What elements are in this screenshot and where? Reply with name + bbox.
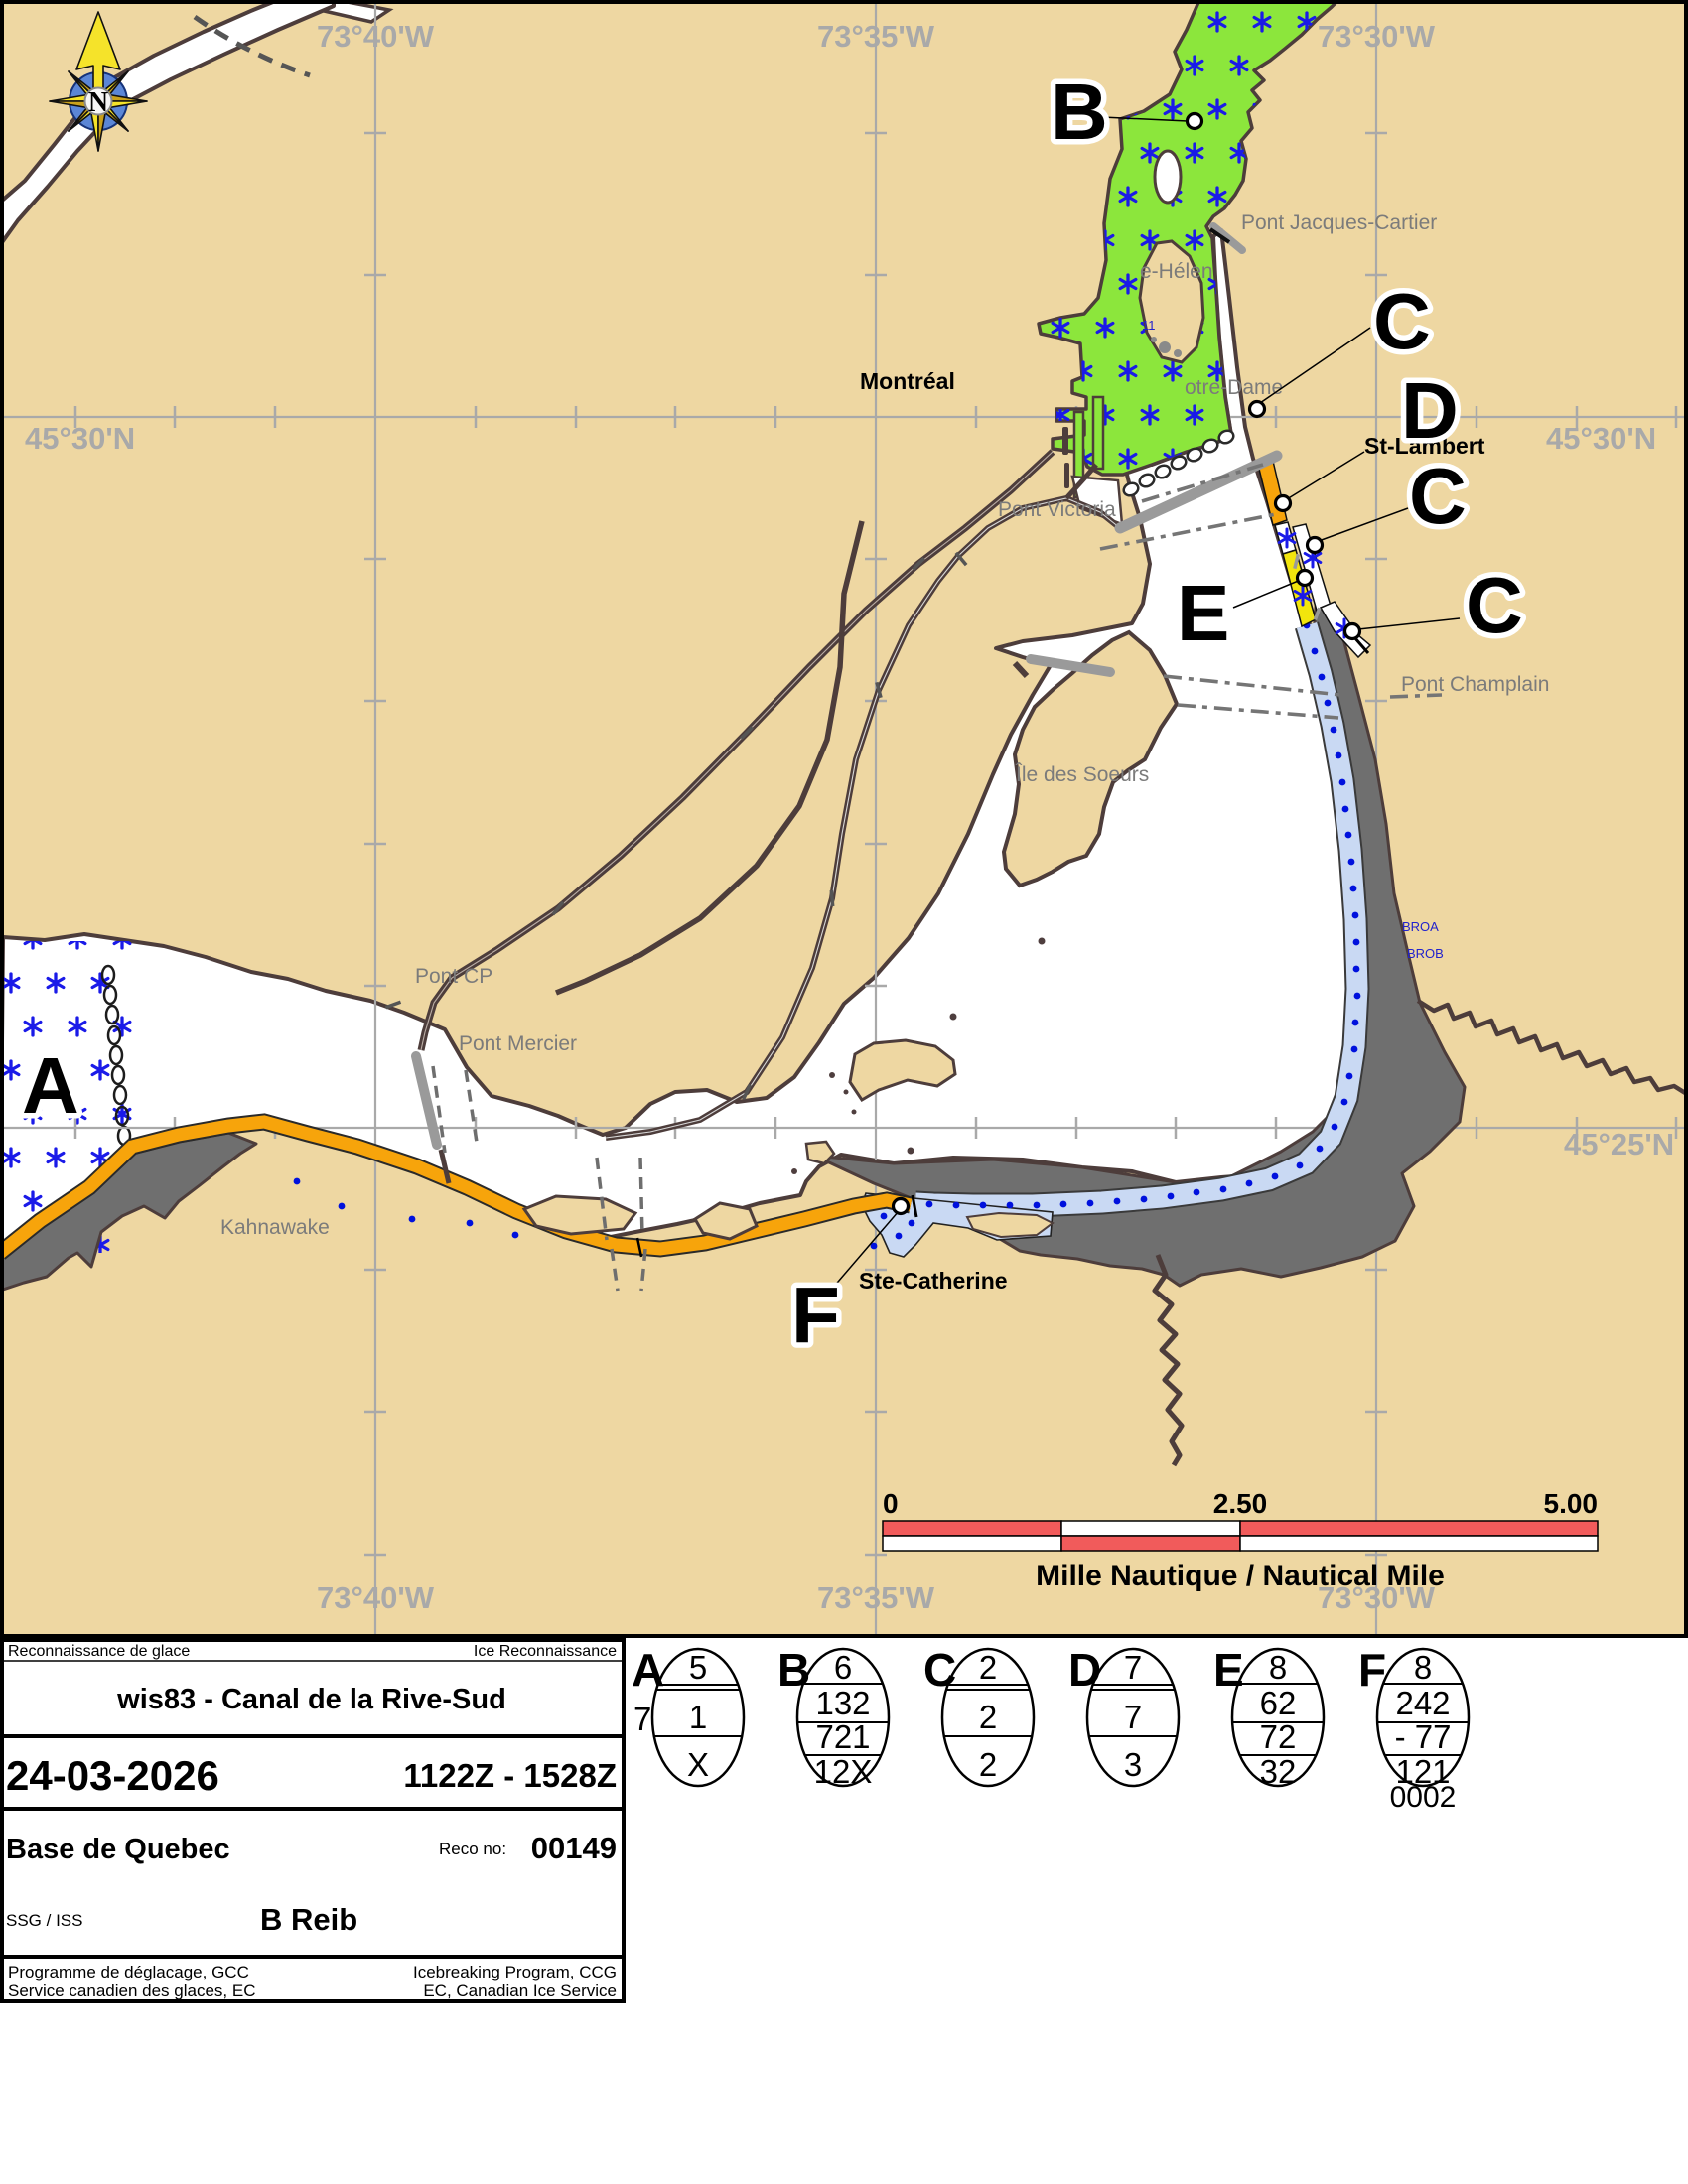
svg-text:73°40'W: 73°40'W — [317, 1580, 435, 1615]
svg-text:1: 1 — [689, 1699, 707, 1735]
svg-text:B Reib: B Reib — [260, 1902, 357, 1937]
svg-text:F: F — [791, 1271, 840, 1359]
svg-text:C: C — [1409, 452, 1467, 540]
svg-text:Montréal: Montréal — [860, 368, 955, 394]
svg-text:E: E — [1213, 1644, 1244, 1696]
svg-text:e-Hélen: e-Hélen — [1140, 260, 1213, 283]
svg-text:73°30'W: 73°30'W — [1318, 19, 1436, 54]
svg-text:E: E — [1177, 569, 1229, 657]
svg-text:Kahnawake: Kahnawake — [220, 1216, 330, 1239]
svg-text:- 77: - 77 — [1395, 1718, 1452, 1755]
svg-text:Programme de déglacage, GCC: Programme de déglacage, GCC — [8, 1963, 249, 1981]
svg-text:Pont Victoria: Pont Victoria — [998, 498, 1116, 521]
svg-text:Service canadien des glaces, E: Service canadien des glaces, EC — [8, 1981, 255, 2000]
svg-text:Ste-Catherine: Ste-Catherine — [859, 1268, 1008, 1294]
svg-text:6: 6 — [834, 1649, 852, 1686]
svg-text:00149: 00149 — [531, 1831, 617, 1865]
svg-text:Mille Nautique / Nautical Mile: Mille Nautique / Nautical Mile — [1036, 1560, 1445, 1592]
svg-text:721: 721 — [815, 1718, 870, 1755]
svg-text:Base de Quebec: Base de Quebec — [6, 1834, 230, 1865]
svg-text:Île des Soeurs: Île des Soeurs — [1015, 763, 1149, 786]
svg-text:0: 0 — [883, 1488, 899, 1519]
svg-text:5.00: 5.00 — [1544, 1488, 1599, 1519]
svg-text:242: 242 — [1395, 1685, 1450, 1721]
svg-text:7: 7 — [1124, 1699, 1142, 1735]
svg-text:C: C — [1373, 277, 1431, 365]
svg-text:Pont Mercier: Pont Mercier — [459, 1032, 577, 1055]
svg-text:73°35'W: 73°35'W — [817, 1580, 935, 1615]
svg-text:24-03-2026: 24-03-2026 — [6, 1752, 219, 1799]
svg-text:BROA: BROA — [1402, 919, 1439, 934]
svg-text:32: 32 — [1260, 1753, 1297, 1790]
svg-text:73°35'W: 73°35'W — [817, 19, 935, 54]
svg-text:B: B — [1051, 68, 1108, 156]
svg-text:2: 2 — [979, 1649, 997, 1686]
svg-text:A: A — [632, 1644, 664, 1696]
svg-text:132: 132 — [815, 1685, 870, 1721]
svg-text:0002: 0002 — [1390, 1781, 1457, 1814]
svg-text:62: 62 — [1260, 1685, 1297, 1721]
svg-text:Pont CP: Pont CP — [415, 965, 492, 988]
svg-text:5: 5 — [689, 1649, 707, 1686]
svg-text:45°25'N: 45°25'N — [1564, 1127, 1674, 1161]
svg-text:7: 7 — [1124, 1649, 1142, 1686]
svg-text:1122Z - 1528Z: 1122Z - 1528Z — [403, 1757, 617, 1794]
svg-text:8: 8 — [1269, 1649, 1287, 1686]
svg-text:45°30'N: 45°30'N — [25, 421, 135, 456]
svg-text:C: C — [1466, 561, 1523, 649]
svg-text:45°30'N: 45°30'N — [1546, 421, 1656, 456]
svg-text:D: D — [1068, 1644, 1101, 1696]
svg-text:12X: 12X — [814, 1753, 873, 1790]
svg-text:wis83 - Canal de la Rive-Sud: wis83 - Canal de la Rive-Sud — [116, 1684, 506, 1715]
svg-text:7: 7 — [633, 1701, 651, 1737]
svg-text:11: 11 — [1142, 318, 1156, 333]
svg-text:D: D — [1401, 366, 1459, 455]
svg-text:73°40'W: 73°40'W — [317, 19, 435, 54]
svg-text:Reco no:: Reco no: — [439, 1840, 506, 1858]
svg-text:3: 3 — [1124, 1746, 1142, 1783]
svg-text:Icebreaking Program, CCG: Icebreaking Program, CCG — [413, 1963, 617, 1981]
svg-text:2: 2 — [979, 1699, 997, 1735]
svg-text:EC, Canadian Ice Service: EC, Canadian Ice Service — [423, 1981, 617, 2000]
svg-text:otre-Dame: otre-Dame — [1185, 376, 1283, 399]
svg-text:N: N — [88, 87, 108, 118]
svg-text:Pont Jacques-Cartier: Pont Jacques-Cartier — [1241, 211, 1437, 234]
svg-text:Ice Reconnaissance: Ice Reconnaissance — [474, 1643, 617, 1660]
svg-text:SSG / ISS: SSG / ISS — [6, 1911, 82, 1930]
svg-text:2: 2 — [979, 1746, 997, 1783]
svg-text:C: C — [923, 1644, 956, 1696]
svg-text:BROB: BROB — [1407, 946, 1444, 961]
svg-text:A: A — [22, 1041, 79, 1130]
svg-text:X: X — [687, 1746, 709, 1783]
svg-text:72: 72 — [1260, 1718, 1297, 1755]
svg-text:Pont Champlain: Pont Champlain — [1401, 673, 1549, 696]
svg-text:B: B — [777, 1644, 810, 1696]
svg-text:Reconnaissance de glace: Reconnaissance de glace — [8, 1643, 190, 1660]
svg-text:2.50: 2.50 — [1213, 1488, 1268, 1519]
svg-text:8: 8 — [1414, 1649, 1432, 1686]
